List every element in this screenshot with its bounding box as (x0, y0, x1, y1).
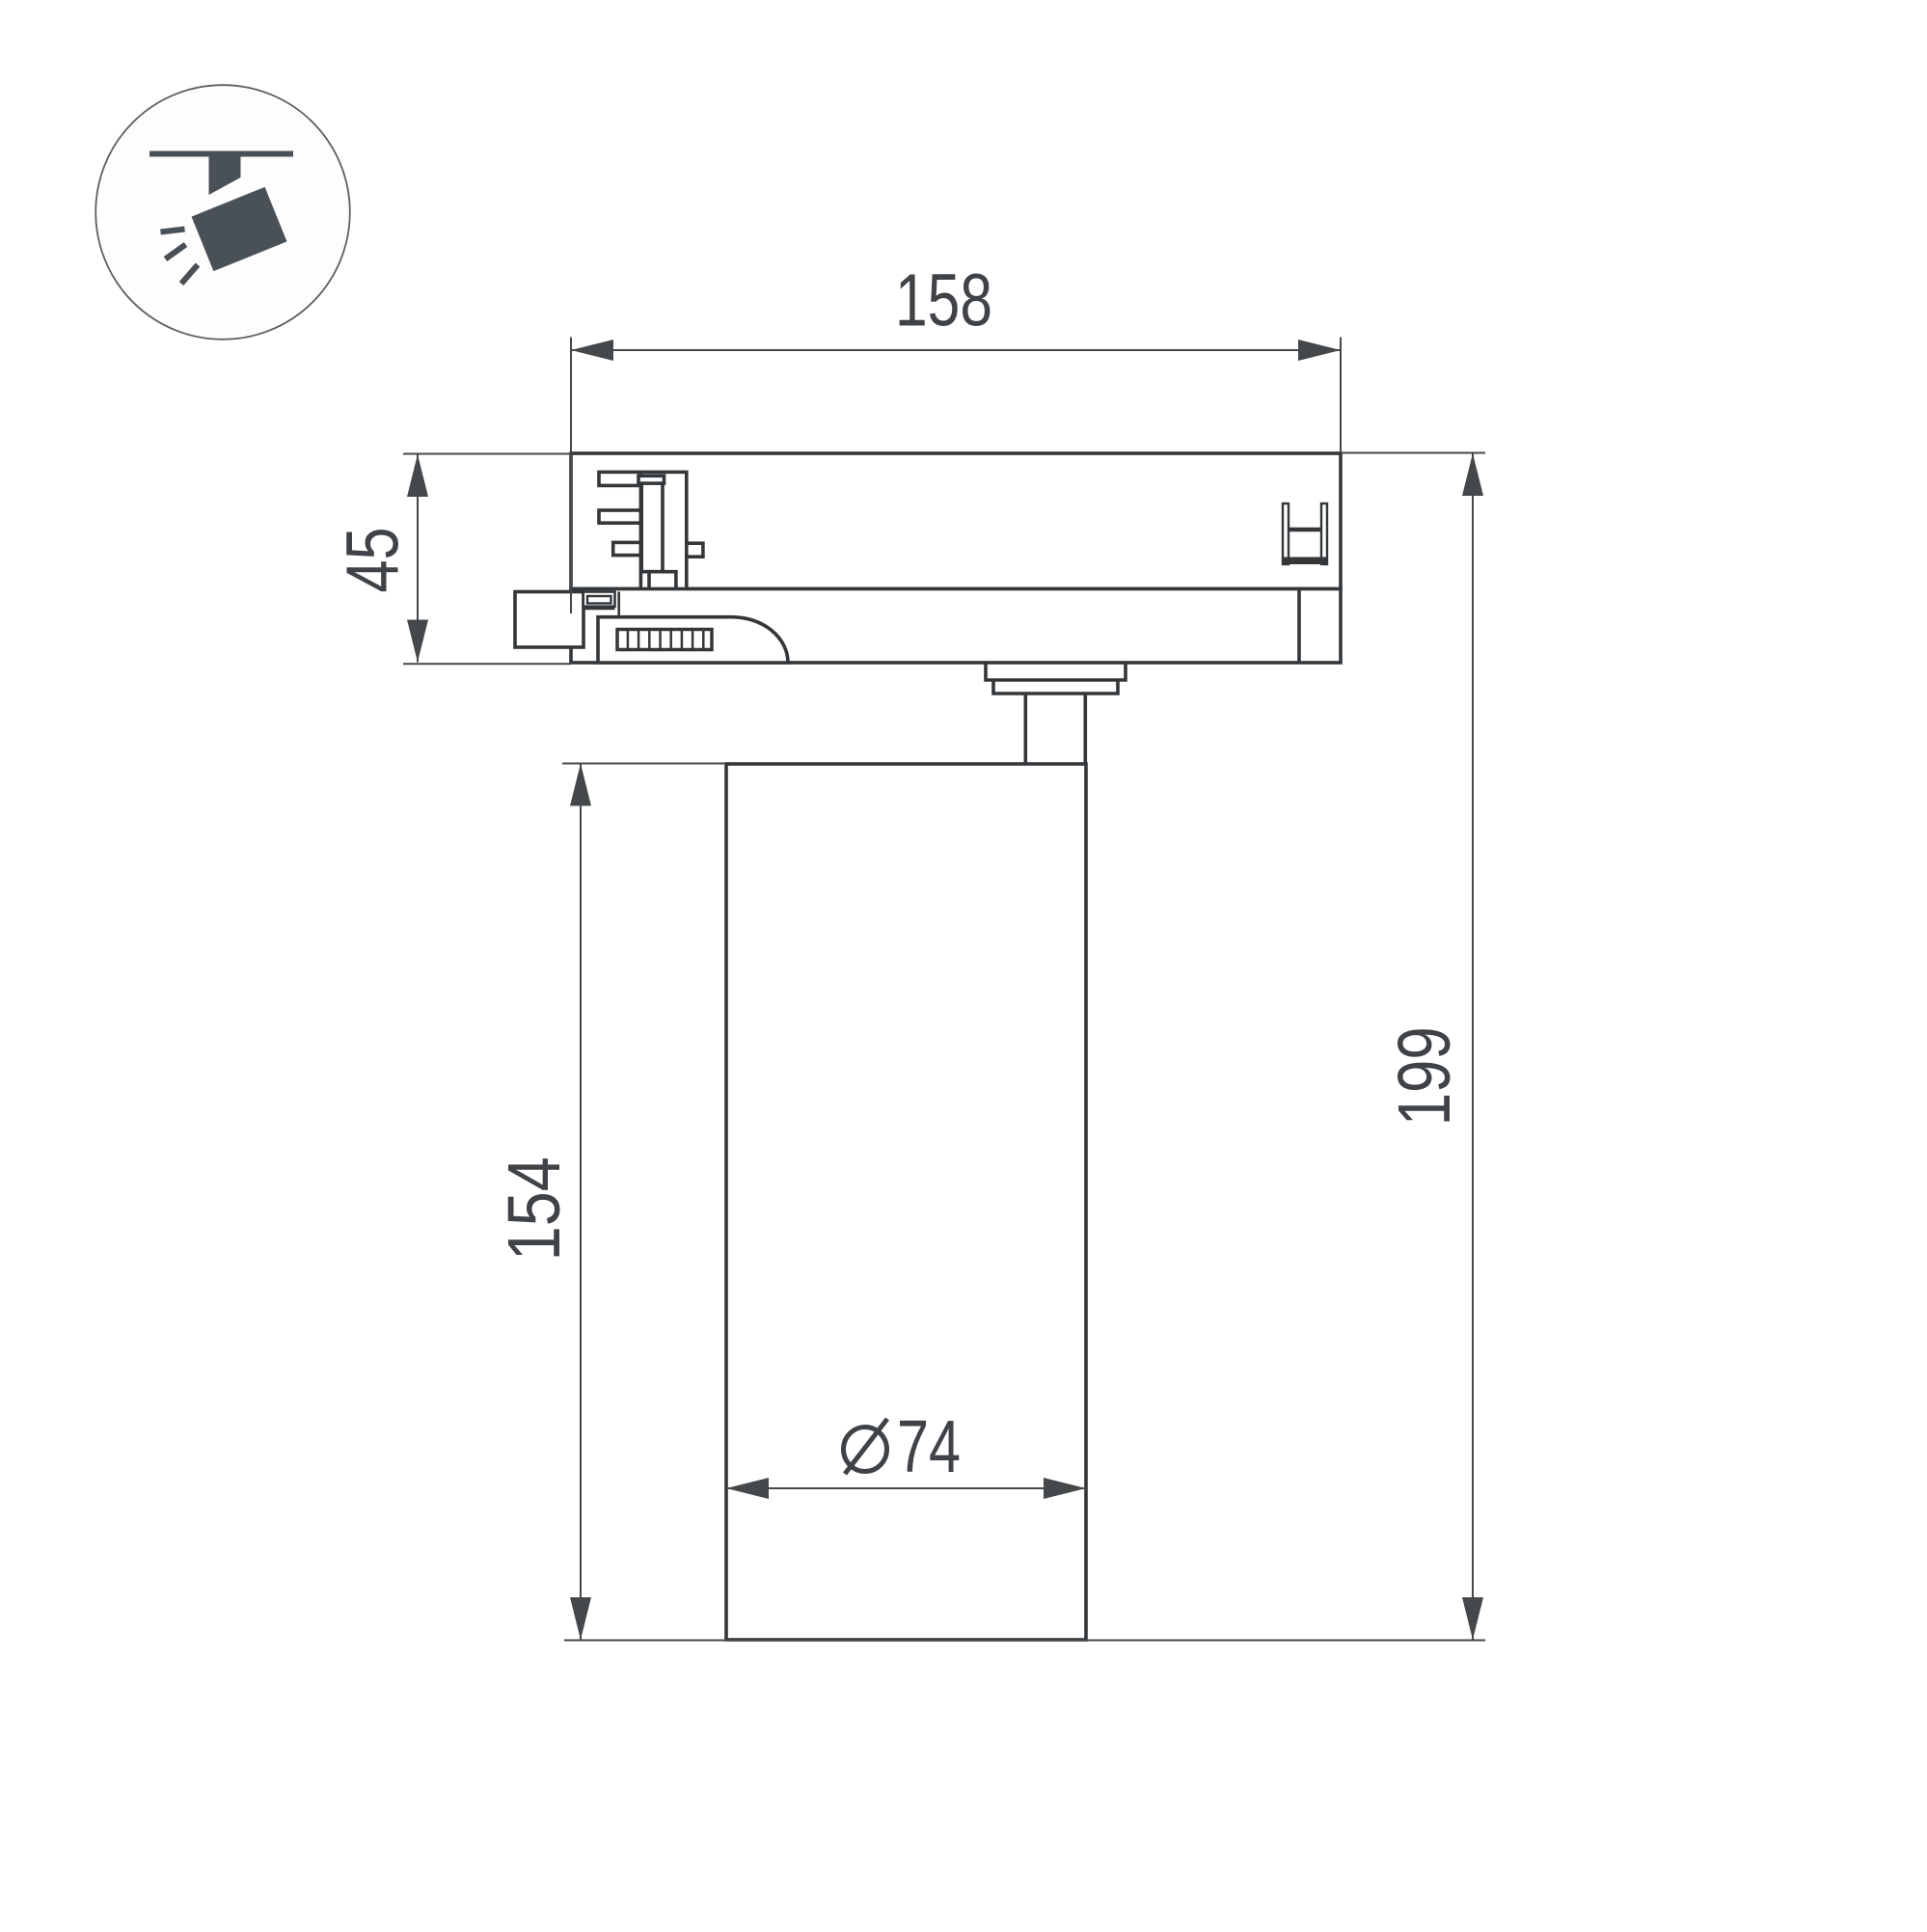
svg-text:199: 199 (1383, 1026, 1466, 1126)
svg-text:158: 158 (895, 259, 992, 342)
svg-text:45: 45 (332, 528, 415, 593)
svg-text:74: 74 (897, 1405, 961, 1488)
svg-text:154: 154 (493, 1156, 576, 1261)
